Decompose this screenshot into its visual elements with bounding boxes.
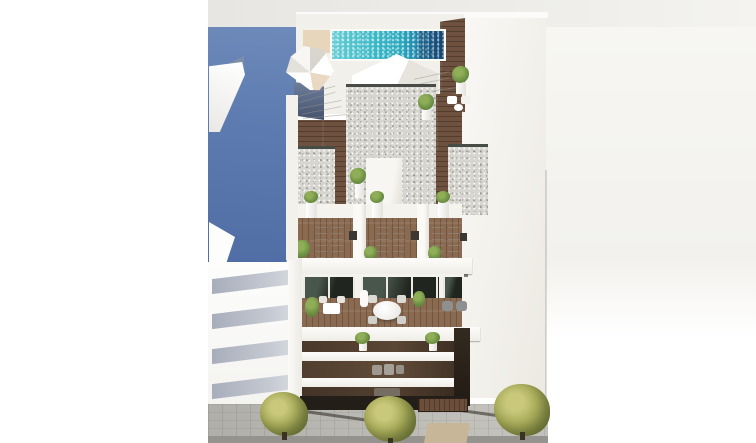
bistro-chair — [461, 96, 471, 104]
balcony-chair — [319, 296, 327, 303]
bistro-table — [454, 104, 463, 111]
penthouse-glazing — [443, 277, 462, 299]
vase — [360, 290, 368, 307]
penthouse-glazing — [303, 277, 355, 299]
corner-dark-column — [454, 328, 470, 406]
balcony-chairs-silhouette — [396, 365, 404, 374]
side-table — [411, 231, 419, 240]
neighbor-slab-shadow — [212, 269, 296, 294]
street-tree — [494, 384, 550, 436]
balcony-chair — [337, 296, 345, 303]
penthouse-slab — [290, 327, 480, 341]
balcony-chairs-silhouette — [372, 365, 382, 375]
plant-pot — [355, 184, 364, 198]
sun-lounger — [331, 224, 343, 258]
dining-chair — [397, 295, 406, 303]
solarium-front-parapet — [290, 258, 472, 274]
left-edge-wall — [286, 95, 298, 260]
street-tree — [364, 396, 416, 442]
armchair — [456, 301, 467, 311]
render-canvas — [0, 0, 756, 443]
building-right-seam — [545, 170, 547, 398]
dining-chair — [397, 316, 406, 324]
floor-slab — [296, 378, 468, 387]
sun-lounger — [448, 224, 460, 258]
left-pillar — [288, 258, 302, 398]
dining-chair — [368, 316, 377, 324]
balcony-table — [323, 303, 340, 314]
bistro-chair — [447, 96, 457, 104]
pool-steps — [418, 31, 444, 59]
rooftop-pool — [330, 29, 446, 61]
sun-lounger — [315, 224, 327, 258]
side-table — [460, 233, 467, 241]
doormat — [424, 423, 470, 443]
neighbor-slab-shadow — [212, 339, 296, 364]
dining-chair — [368, 295, 377, 303]
neighbor-slab-shadow — [212, 304, 296, 329]
side-table — [349, 231, 357, 240]
sun-lounger — [393, 224, 405, 258]
garage-door — [418, 398, 468, 412]
background-right — [546, 27, 756, 337]
sun-lounger — [377, 224, 389, 258]
balcony-chairs-silhouette — [384, 364, 394, 375]
floor-slab — [296, 352, 468, 361]
armchair — [442, 301, 453, 311]
street-tree — [260, 392, 308, 436]
